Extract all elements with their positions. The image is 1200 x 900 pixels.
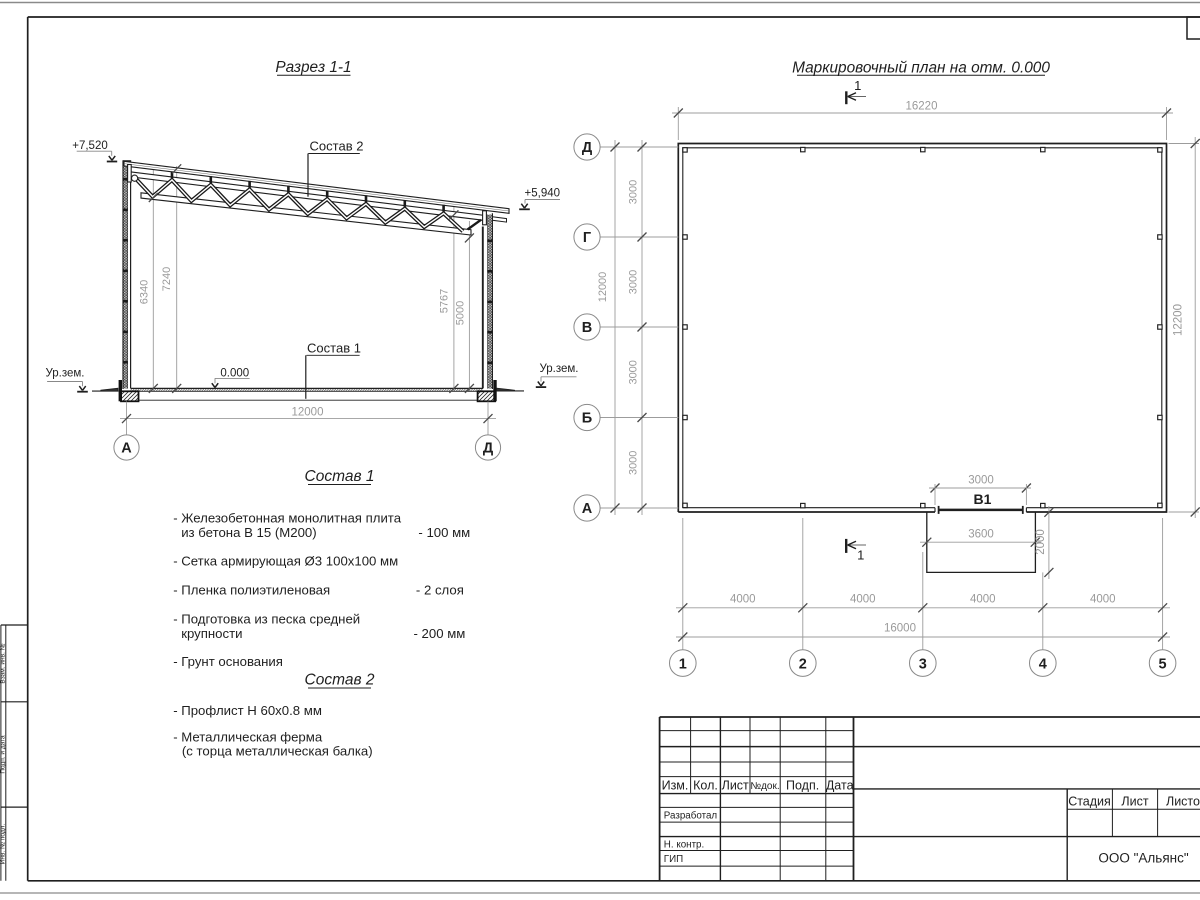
svg-text:Н. контр.: Н. контр.: [664, 840, 704, 851]
svg-text:12200: 12200: [1173, 304, 1185, 336]
svg-text:3600: 3600: [968, 529, 994, 541]
svg-text:3000: 3000: [627, 451, 639, 475]
svg-text:Кол.: Кол.: [693, 779, 718, 793]
svg-text:7240: 7240: [161, 267, 173, 291]
svg-text:3000: 3000: [627, 360, 639, 384]
svg-text:В1: В1: [974, 491, 992, 507]
svg-text:А: А: [121, 441, 132, 457]
svg-text:- Подготовка из песка средней: - Подготовка из песка средней: [173, 612, 360, 627]
svg-text:5000: 5000: [455, 301, 467, 325]
svg-text:из бетона В 15 (М200): из бетона В 15 (М200): [181, 525, 316, 540]
svg-text:А: А: [582, 501, 593, 517]
svg-text:Ур.зем.: Ур.зем.: [539, 363, 578, 375]
svg-text:- 2 слоя: - 2 слоя: [416, 583, 464, 598]
svg-text:Д: Д: [582, 140, 593, 156]
svg-text:12000: 12000: [292, 407, 324, 419]
svg-text:5: 5: [1159, 656, 1167, 672]
svg-text:4: 4: [1039, 656, 1047, 672]
svg-text:12000: 12000: [597, 272, 609, 303]
svg-text:6340: 6340: [139, 280, 151, 304]
svg-text:крупности: крупности: [181, 626, 242, 641]
svg-text:ООО "Альянс": ООО "Альянс": [1098, 851, 1188, 866]
svg-text:Инв. № подл.: Инв. № подл.: [0, 824, 7, 865]
svg-text:4000: 4000: [850, 593, 876, 605]
svg-text:Б: Б: [582, 411, 592, 427]
svg-text:Состав 2: Состав 2: [305, 672, 375, 689]
svg-text:Дата: Дата: [826, 779, 854, 793]
svg-text:- Пленка полиэтиленовая: - Пленка полиэтиленовая: [173, 583, 330, 598]
svg-text:- Грунт основания: - Грунт основания: [173, 654, 283, 669]
svg-text:Состав 1: Состав 1: [305, 468, 375, 485]
svg-text:2: 2: [799, 656, 807, 672]
svg-text:- Профлист Н 60х0.8 мм: - Профлист Н 60х0.8 мм: [173, 703, 322, 718]
svg-text:Подп. и дата: Подп. и дата: [0, 735, 7, 774]
svg-text:4000: 4000: [1090, 593, 1116, 605]
svg-text:Д: Д: [483, 441, 494, 457]
svg-text:Подп.: Подп.: [786, 779, 819, 793]
svg-text:16220: 16220: [906, 100, 938, 112]
svg-text:Лист: Лист: [1121, 795, 1148, 809]
svg-text:Ур.зем.: Ур.зем.: [45, 368, 84, 380]
svg-text:4000: 4000: [730, 593, 756, 605]
svg-text:3000: 3000: [627, 270, 639, 294]
svg-text:ГИП: ГИП: [664, 854, 683, 865]
svg-text:Взам. инв. №: Взам. инв. №: [0, 643, 7, 683]
svg-text:Маркировочный план на отм. 0.0: Маркировочный план на отм. 0.000: [792, 60, 1050, 77]
svg-text:1: 1: [857, 548, 864, 563]
svg-text:Разрез 1-1: Разрез 1-1: [275, 59, 351, 76]
svg-text:Состав 1: Состав 1: [307, 341, 361, 356]
svg-text:Стадия: Стадия: [1068, 795, 1111, 809]
svg-text:Состав 2: Состав 2: [310, 139, 364, 154]
svg-text:Листов: Листов: [1166, 795, 1200, 809]
svg-text:1: 1: [679, 656, 687, 672]
svg-text:16000: 16000: [884, 623, 916, 635]
svg-text:- Железобетонная монолитная п: - Железобетонная монолитная плита: [173, 511, 402, 526]
svg-text:+5,940: +5,940: [525, 187, 561, 199]
svg-text:3000: 3000: [627, 180, 639, 204]
svg-text:Разработал: Разработал: [664, 811, 718, 822]
svg-text:Г: Г: [583, 230, 591, 246]
svg-text:4000: 4000: [970, 593, 996, 605]
svg-text:3: 3: [919, 656, 927, 672]
svg-text:Лист: Лист: [722, 779, 749, 793]
svg-text:1: 1: [854, 78, 861, 93]
svg-text:3000: 3000: [968, 475, 994, 487]
svg-text:+7,520: +7,520: [72, 140, 108, 152]
svg-text:5767: 5767: [439, 289, 451, 313]
svg-text:- 100 мм: - 100 мм: [418, 525, 470, 540]
svg-text:№док.: №док.: [750, 781, 779, 792]
svg-text:- Металлическая ферма: - Металлическая ферма: [173, 730, 323, 745]
svg-text:В: В: [582, 320, 592, 336]
svg-text:(с торца металлическая балка): (с торца металлическая балка): [182, 744, 373, 759]
svg-text:0.000: 0.000: [220, 367, 249, 379]
svg-text:- 200 мм: - 200 мм: [414, 626, 466, 641]
svg-text:- Сетка армирующая Ø3 100х100: - Сетка армирующая Ø3 100х100 мм: [173, 554, 398, 569]
svg-text:Изм.: Изм.: [662, 779, 689, 793]
svg-text:2000: 2000: [1035, 529, 1047, 555]
